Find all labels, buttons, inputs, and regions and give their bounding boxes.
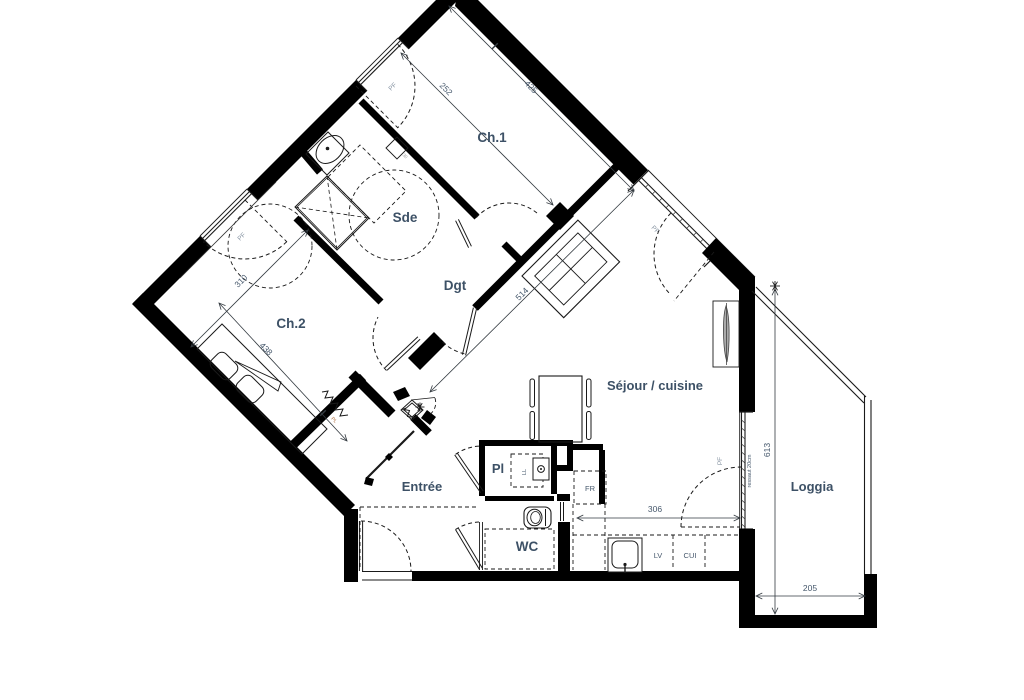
svg-text:PF: PF <box>717 457 724 465</box>
svg-text:Ch.1: Ch.1 <box>477 130 507 145</box>
svg-text:ressaut 20cm: ressaut 20cm <box>747 454 753 487</box>
svg-text:Pl: Pl <box>492 461 504 476</box>
svg-text:LL: LL <box>522 469 528 475</box>
svg-text:CUI: CUI <box>684 551 697 560</box>
svg-text:Entrée: Entrée <box>402 479 442 494</box>
svg-text:FR: FR <box>585 484 596 493</box>
svg-text:Séjour / cuisine: Séjour / cuisine <box>607 378 703 393</box>
svg-text:Dgt: Dgt <box>444 278 467 293</box>
svg-text:205: 205 <box>803 583 817 593</box>
svg-text:613: 613 <box>762 443 772 457</box>
svg-text:LV: LV <box>654 551 663 560</box>
svg-text:Ch.2: Ch.2 <box>276 316 305 331</box>
svg-text:306: 306 <box>648 504 662 514</box>
svg-text:Sde: Sde <box>393 210 418 225</box>
svg-text:WC: WC <box>516 539 539 554</box>
svg-text:Loggia: Loggia <box>791 479 834 494</box>
